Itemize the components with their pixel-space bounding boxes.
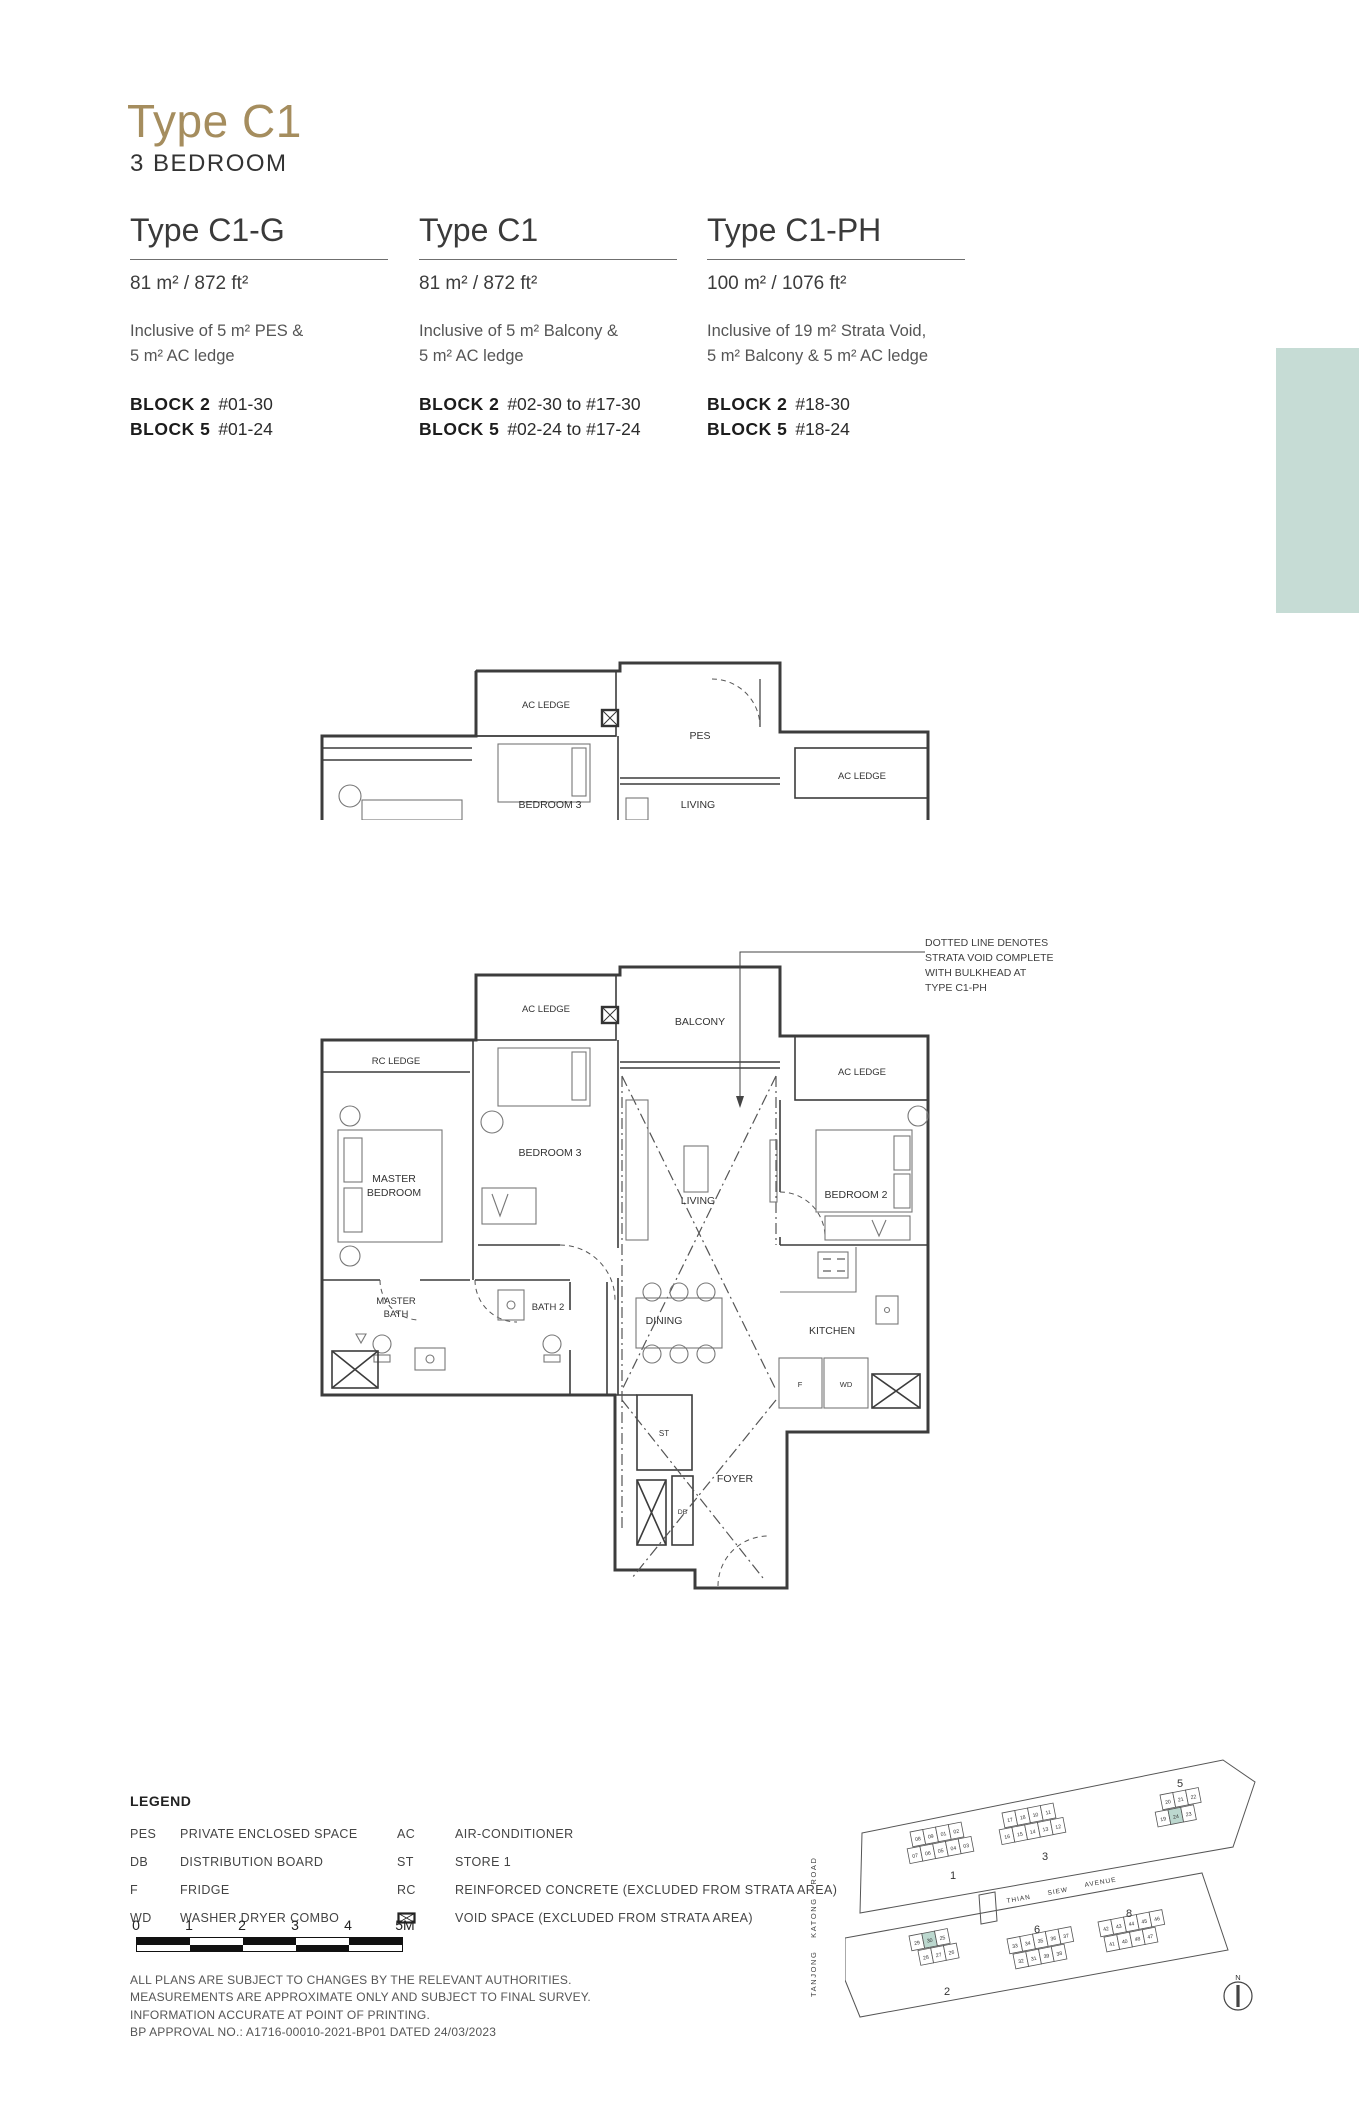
site-plan: THIAN SIEW AVENUE 08090102 0706050403 1 … — [845, 1755, 1359, 2070]
site-block-2: 293025 282726 — [909, 1927, 959, 1966]
partial-floor-plan-c1g: AC LEDGE PES AC LEDGE BEDROOM 3 LIVING — [320, 648, 940, 820]
variant-blocks: BLOCK 2#01-30 BLOCK 5#01-24 — [130, 392, 388, 443]
room-label-ac-ledge: AC LEDGE — [838, 1067, 886, 1078]
room-label-living: LIVING — [681, 799, 715, 811]
variant-c1: Type C1 81 m² / 872 ft² Inclusive of 5 m… — [419, 212, 677, 442]
road-label: SIEW — [1047, 1886, 1069, 1896]
room-label-bedroom3: BEDROOM 3 — [518, 799, 581, 811]
room-label-bedroom2: BEDROOM 2 — [824, 1189, 887, 1201]
legend-column-2: ACAIR-CONDITIONER STSTORE 1 RCREINFORCED… — [397, 1820, 877, 1932]
variant-area: 81 m² / 872 ft² — [419, 273, 677, 295]
variant-area: 100 m² / 1076 ft² — [707, 273, 965, 295]
page-title: Type C1 — [127, 94, 302, 148]
variant-blocks: BLOCK 2#02-30 to #17-30 BLOCK 5#02-24 to… — [419, 392, 677, 443]
legend-row: DBDISTRIBUTION BOARD — [130, 1848, 390, 1876]
room-label-ac-ledge: AC LEDGE — [522, 700, 570, 711]
room-label-ac-ledge: AC LEDGE — [838, 771, 886, 782]
site-block-label-1: 1 — [950, 1870, 956, 1882]
main-floor-plan: RC LEDGE AC LEDGE BALCONY AC LEDGE MASTE… — [320, 930, 940, 1602]
label-store: ST — [659, 1429, 669, 1438]
room-label-pes: PES — [689, 730, 710, 742]
legend-row: RCREINFORCED CONCRETE (EXCLUDED FROM STR… — [397, 1876, 877, 1904]
road-junction — [979, 1892, 997, 1924]
floorplan-page: Type C1 3 BEDROOM Type C1-G 81 m² / 872 … — [0, 0, 1359, 2126]
legend-title: LEGEND — [130, 1793, 191, 1809]
variant-inclusive: Inclusive of 5 m² PES & 5 m² AC ledge — [130, 319, 388, 369]
legend-row: STSTORE 1 — [397, 1848, 877, 1876]
room-label-foyer: FOYER — [717, 1473, 754, 1485]
variant-inclusive: Inclusive of 19 m² Strata Void, 5 m² Bal… — [707, 319, 965, 369]
variant-title: Type C1-G — [130, 212, 388, 260]
void-space-icon — [602, 710, 618, 726]
site-block-1: 08090102 0706050403 — [904, 1821, 974, 1864]
road-label: THIAN — [1006, 1894, 1031, 1905]
site-block-3: 17181011 1615141312 — [996, 1802, 1066, 1845]
legend-row: VOID SPACE (EXCLUDED FROM STRATA AREA) — [397, 1904, 877, 1932]
site-block-6: 3334353637 32313938 — [1007, 1927, 1077, 1970]
label-distribution-board: DB — [678, 1509, 688, 1516]
svg-text:BATH: BATH — [384, 1309, 409, 1320]
page-edge-color-tab — [1276, 348, 1359, 613]
page-subtitle: 3 BEDROOM — [130, 150, 288, 178]
legend-row: PESPRIVATE ENCLOSED SPACE — [130, 1820, 390, 1848]
label-fridge: F — [798, 1380, 803, 1389]
variant-title: Type C1-PH — [707, 212, 965, 260]
site-block-label-6: 6 — [1034, 1924, 1040, 1936]
svg-text:N: N — [1235, 1973, 1240, 1982]
strata-void-annotation: DOTTED LINE DENOTES STRATA VOID COMPLETE… — [925, 936, 1095, 996]
room-label-master-bedroom: MASTER — [372, 1173, 416, 1185]
room-label-living: LIVING — [681, 1195, 715, 1207]
variant-blocks: BLOCK 2#18-30 BLOCK 5#18-24 — [707, 392, 965, 443]
site-block-label-3: 3 — [1042, 1851, 1048, 1863]
road-label: AVENUE — [1084, 1876, 1117, 1888]
void-space-icon — [602, 1007, 618, 1023]
variant-inclusive: Inclusive of 5 m² Balcony & 5 m² AC ledg… — [419, 319, 677, 369]
site-block-label-5: 5 — [1177, 1778, 1183, 1790]
svg-text:BEDROOM: BEDROOM — [367, 1187, 421, 1199]
room-label-rc-ledge: RC LEDGE — [372, 1056, 421, 1067]
room-label-ac-ledge: AC LEDGE — [522, 1004, 570, 1015]
variant-title: Type C1 — [419, 212, 677, 260]
variant-c1g: Type C1-G 81 m² / 872 ft² Inclusive of 5… — [130, 212, 388, 442]
site-block-5: 202122 192423 — [1152, 1788, 1204, 1827]
north-arrow-icon: N — [1224, 1973, 1252, 2010]
legend-row: ACAIR-CONDITIONER — [397, 1820, 877, 1848]
room-label-dining: DINING — [646, 1315, 683, 1327]
legend-column-1: PESPRIVATE ENCLOSED SPACE DBDISTRIBUTION… — [130, 1820, 390, 1932]
room-label-kitchen: KITCHEN — [809, 1325, 855, 1337]
room-label-balcony: BALCONY — [675, 1016, 725, 1028]
variant-area: 81 m² / 872 ft² — [130, 273, 388, 295]
label-washer-dryer: WD — [840, 1380, 853, 1389]
legend-row: FFRIDGE — [130, 1876, 390, 1904]
scale-bar: 0 1 2 3 4 5M — [130, 1917, 410, 1967]
room-label-bedroom3: BEDROOM 3 — [518, 1147, 581, 1159]
road-label-vertical: TANJONG KATONG ROAD — [809, 1852, 818, 1997]
site-block-label-8: 8 — [1126, 1908, 1132, 1920]
disclaimer-text: ALL PLANS ARE SUBJECT TO CHANGES BY THE … — [130, 1972, 591, 2042]
room-label-master-bath: MASTER — [376, 1296, 416, 1307]
site-block-label-2: 2 — [944, 1986, 950, 1998]
room-label-bath2: BATH 2 — [532, 1302, 565, 1313]
variant-c1ph: Type C1-PH 100 m² / 1076 ft² Inclusive o… — [707, 212, 965, 442]
site-block-8: 4243444546 41404847 — [1098, 1910, 1168, 1953]
